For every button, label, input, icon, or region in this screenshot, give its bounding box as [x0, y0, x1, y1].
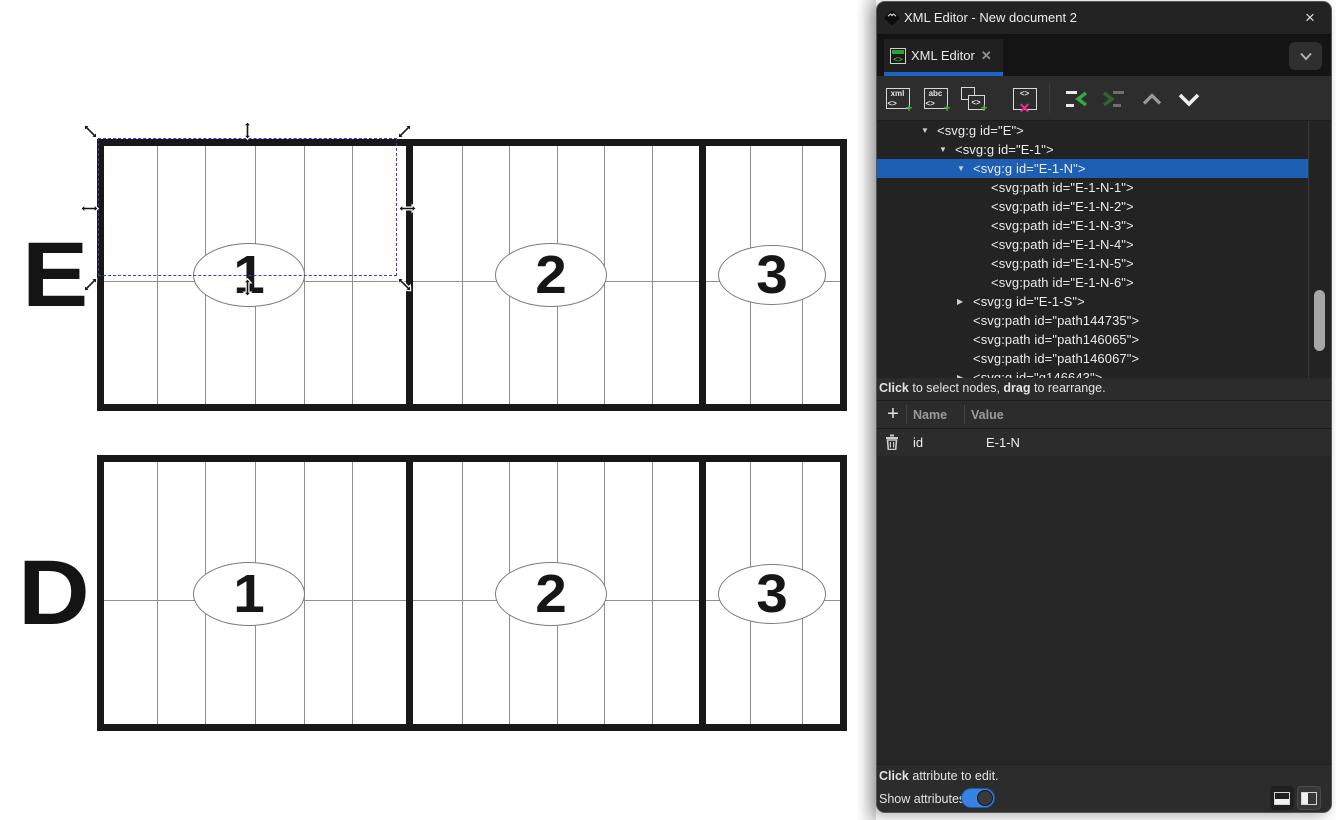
ellipse-3[interactable]: 3: [718, 564, 826, 624]
attributes-empty-area: [877, 456, 1331, 764]
section-divider: [699, 146, 706, 404]
tree-node[interactable]: ▼<svg:g id="E-1-N">: [877, 159, 1310, 178]
expander-open-icon[interactable]: ▼: [939, 140, 955, 159]
tree-node-label: <svg:path id="E-1-N-3">: [991, 216, 1134, 235]
tree-node-label: <svg:path id="path146065">: [973, 330, 1139, 349]
split-horizontal-icon: [1274, 792, 1290, 805]
xml-editor-window: XML Editor - New document 2 × <> XML Edi…: [876, 1, 1332, 813]
panel-bottom-bar: Click attribute to edit. Show attributes: [877, 764, 1331, 813]
tree-node-label: <svg:g id="E-1">: [955, 140, 1054, 159]
toggle-knob: [977, 790, 993, 806]
window-title: XML Editor - New document 2: [904, 10, 1077, 25]
scale-handle-w[interactable]: [79, 198, 99, 218]
scale-handle-se[interactable]: [394, 274, 414, 294]
scale-handle-nw[interactable]: [80, 121, 100, 141]
section-divider: [699, 462, 706, 724]
indent-node-icon: [1101, 89, 1125, 109]
figure-d[interactable]: 1 2 3: [97, 455, 847, 731]
expander-spacer: [957, 349, 973, 368]
new-element-node-icon: xml <> +: [886, 88, 910, 109]
tree-node[interactable]: <svg:path id="path146067">: [877, 349, 1310, 368]
figure-label-d: D: [18, 547, 90, 639]
tree-node-label: <svg:path id="path146067">: [973, 349, 1139, 368]
new-text-node-button[interactable]: abc <> +: [922, 85, 949, 112]
tree-node[interactable]: <svg:path id="E-1-N-6">: [877, 273, 1310, 292]
attributes-header: + Name Value: [877, 400, 1331, 429]
move-node-down-button[interactable]: [1175, 85, 1202, 112]
tree-node[interactable]: <svg:path id="E-1-N-3">: [877, 216, 1310, 235]
unindent-node-button[interactable]: [1063, 85, 1090, 112]
tree-scrollbar[interactable]: [1308, 121, 1331, 378]
tree-scrollbar-thumb[interactable]: [1314, 290, 1325, 351]
indent-node-button[interactable]: [1099, 85, 1126, 112]
selection-bounding-box[interactable]: [98, 138, 397, 276]
panel-shadow: [856, 0, 876, 820]
tree-node-label: <svg:path id="E-1-N-1">: [991, 178, 1134, 197]
layout-horizontal-button[interactable]: [1270, 786, 1294, 810]
tree-node[interactable]: ▼<svg:g id="E-1">: [877, 140, 1310, 159]
ellipse-number: 2: [535, 244, 567, 306]
attributes-table: idE-1-N: [877, 429, 1331, 456]
expander-spacer: [975, 216, 991, 235]
attribute-value[interactable]: E-1-N: [986, 435, 1020, 450]
expander-closed-icon[interactable]: ▶: [957, 368, 973, 378]
expander-spacer: [975, 273, 991, 292]
tree-node-label: <svg:g id="E-1-N">: [973, 159, 1086, 178]
tree-node-label: <svg:g id="g146643">: [973, 368, 1102, 378]
xml-editor-icon: <>: [890, 48, 906, 64]
tab-strip: <> XML Editor ✕: [877, 35, 1331, 76]
delete-node-button[interactable]: <> ✕: [1011, 85, 1038, 112]
figure-label-e: E: [22, 229, 88, 321]
grid-line: [462, 146, 463, 404]
chevron-down-icon: [1298, 49, 1314, 63]
tree-node-label: <svg:g id="E">: [937, 121, 1024, 140]
attribute-hint: Click attribute to edit.: [879, 769, 999, 783]
tree-node-label: <svg:path id="E-1-N-6">: [991, 273, 1134, 292]
section-divider: [406, 462, 413, 724]
split-vertical-icon: [1301, 792, 1317, 805]
grid-line: [462, 462, 463, 724]
expander-spacer: [975, 254, 991, 273]
scale-handle-ne[interactable]: [394, 121, 414, 141]
new-element-node-button[interactable]: xml <> +: [884, 85, 911, 112]
show-attributes-toggle[interactable]: [961, 788, 995, 808]
xml-node-tree: ▼<svg:g id="E">▼<svg:g id="E-1">▼<svg:g …: [877, 121, 1331, 378]
expander-spacer: [957, 311, 973, 330]
ellipse-2[interactable]: 2: [495, 562, 607, 626]
tree-node[interactable]: <svg:path id="path146065">: [877, 330, 1310, 349]
tree-node[interactable]: <svg:path id="E-1-N-5">: [877, 254, 1310, 273]
scale-handle-sw[interactable]: [80, 274, 100, 294]
attribute-name[interactable]: id: [913, 435, 923, 450]
close-icon[interactable]: ×: [1299, 7, 1321, 29]
ellipse-3[interactable]: 3: [718, 245, 826, 305]
expander-closed-icon[interactable]: ▶: [957, 292, 973, 311]
xml-toolbar: xml <> + abc <> + <> + <> ✕: [877, 76, 1331, 121]
tree-node[interactable]: ▶<svg:g id="g146643">: [877, 368, 1310, 378]
grid-line: [157, 462, 158, 724]
delete-node-icon: <> ✕: [1013, 88, 1037, 110]
scale-handle-s[interactable]: [237, 277, 257, 297]
panel-menu-button[interactable]: [1289, 42, 1322, 70]
layout-vertical-button[interactable]: [1297, 786, 1321, 810]
inkscape-logo-icon: [884, 10, 900, 26]
tree-node[interactable]: ▼<svg:g id="E">: [877, 121, 1310, 140]
tree-node[interactable]: <svg:path id="E-1-N-4">: [877, 235, 1310, 254]
duplicate-node-icon: <> +: [961, 87, 985, 110]
grid-line: [352, 462, 353, 724]
expander-spacer: [957, 330, 973, 349]
ellipse-number: 2: [535, 563, 567, 625]
move-node-up-button[interactable]: [1138, 85, 1165, 112]
ellipse-1[interactable]: 1: [193, 562, 305, 626]
tab-xml-editor[interactable]: <> XML Editor ✕: [884, 39, 1003, 72]
grid-line: [652, 146, 653, 404]
tab-close-icon[interactable]: ✕: [981, 48, 992, 64]
tree-node-label: <svg:path id="path144735">: [973, 311, 1139, 330]
tree-node[interactable]: <svg:path id="path144735">: [877, 311, 1310, 330]
expander-spacer: [975, 197, 991, 216]
unindent-node-icon: [1065, 89, 1089, 109]
ellipse-number: 3: [756, 563, 788, 625]
grid-line: [652, 462, 653, 724]
tree-node[interactable]: ▶<svg:g id="E-1-S">: [877, 292, 1310, 311]
duplicate-node-button[interactable]: <> +: [959, 85, 986, 112]
tree-node-label: <svg:path id="E-1-N-5">: [991, 254, 1134, 273]
attr-value-header: Value: [971, 408, 1004, 422]
expander-open-icon[interactable]: ▼: [957, 159, 973, 178]
tree-node[interactable]: <svg:path id="E-1-N-2">: [877, 197, 1310, 216]
tree-hint: Click to select nodes, drag to rearrange…: [877, 378, 1331, 400]
tab-label: XML Editor: [911, 48, 975, 63]
tree-node-label: <svg:path id="E-1-N-2">: [991, 197, 1134, 216]
window-titlebar[interactable]: XML Editor - New document 2 ×: [877, 2, 1331, 35]
attribute-row[interactable]: idE-1-N: [877, 429, 1331, 456]
scale-handle-e[interactable]: [397, 198, 417, 218]
ellipse-2[interactable]: 2: [495, 243, 607, 307]
expander-spacer: [975, 235, 991, 254]
expander-open-icon[interactable]: ▼: [921, 121, 937, 140]
add-attribute-button[interactable]: +: [883, 402, 903, 426]
toolbar-separator: [1049, 84, 1050, 113]
show-attributes-label: Show attributes: [879, 792, 965, 806]
scale-handle-n[interactable]: [237, 120, 257, 140]
ellipse-number: 1: [233, 563, 265, 625]
delete-attribute-icon[interactable]: [885, 434, 899, 450]
tree-node-label: <svg:g id="E-1-S">: [973, 292, 1085, 311]
attr-name-header: Name: [913, 408, 947, 422]
ellipse-number: 3: [756, 244, 788, 306]
chevron-down-icon: [1176, 89, 1202, 109]
tree-node-label: <svg:path id="E-1-N-4">: [991, 235, 1134, 254]
tree-node[interactable]: <svg:path id="E-1-N-1">: [877, 178, 1310, 197]
new-text-node-icon: abc <> +: [924, 88, 948, 109]
expander-spacer: [975, 178, 991, 197]
chevron-up-icon: [1140, 89, 1164, 109]
